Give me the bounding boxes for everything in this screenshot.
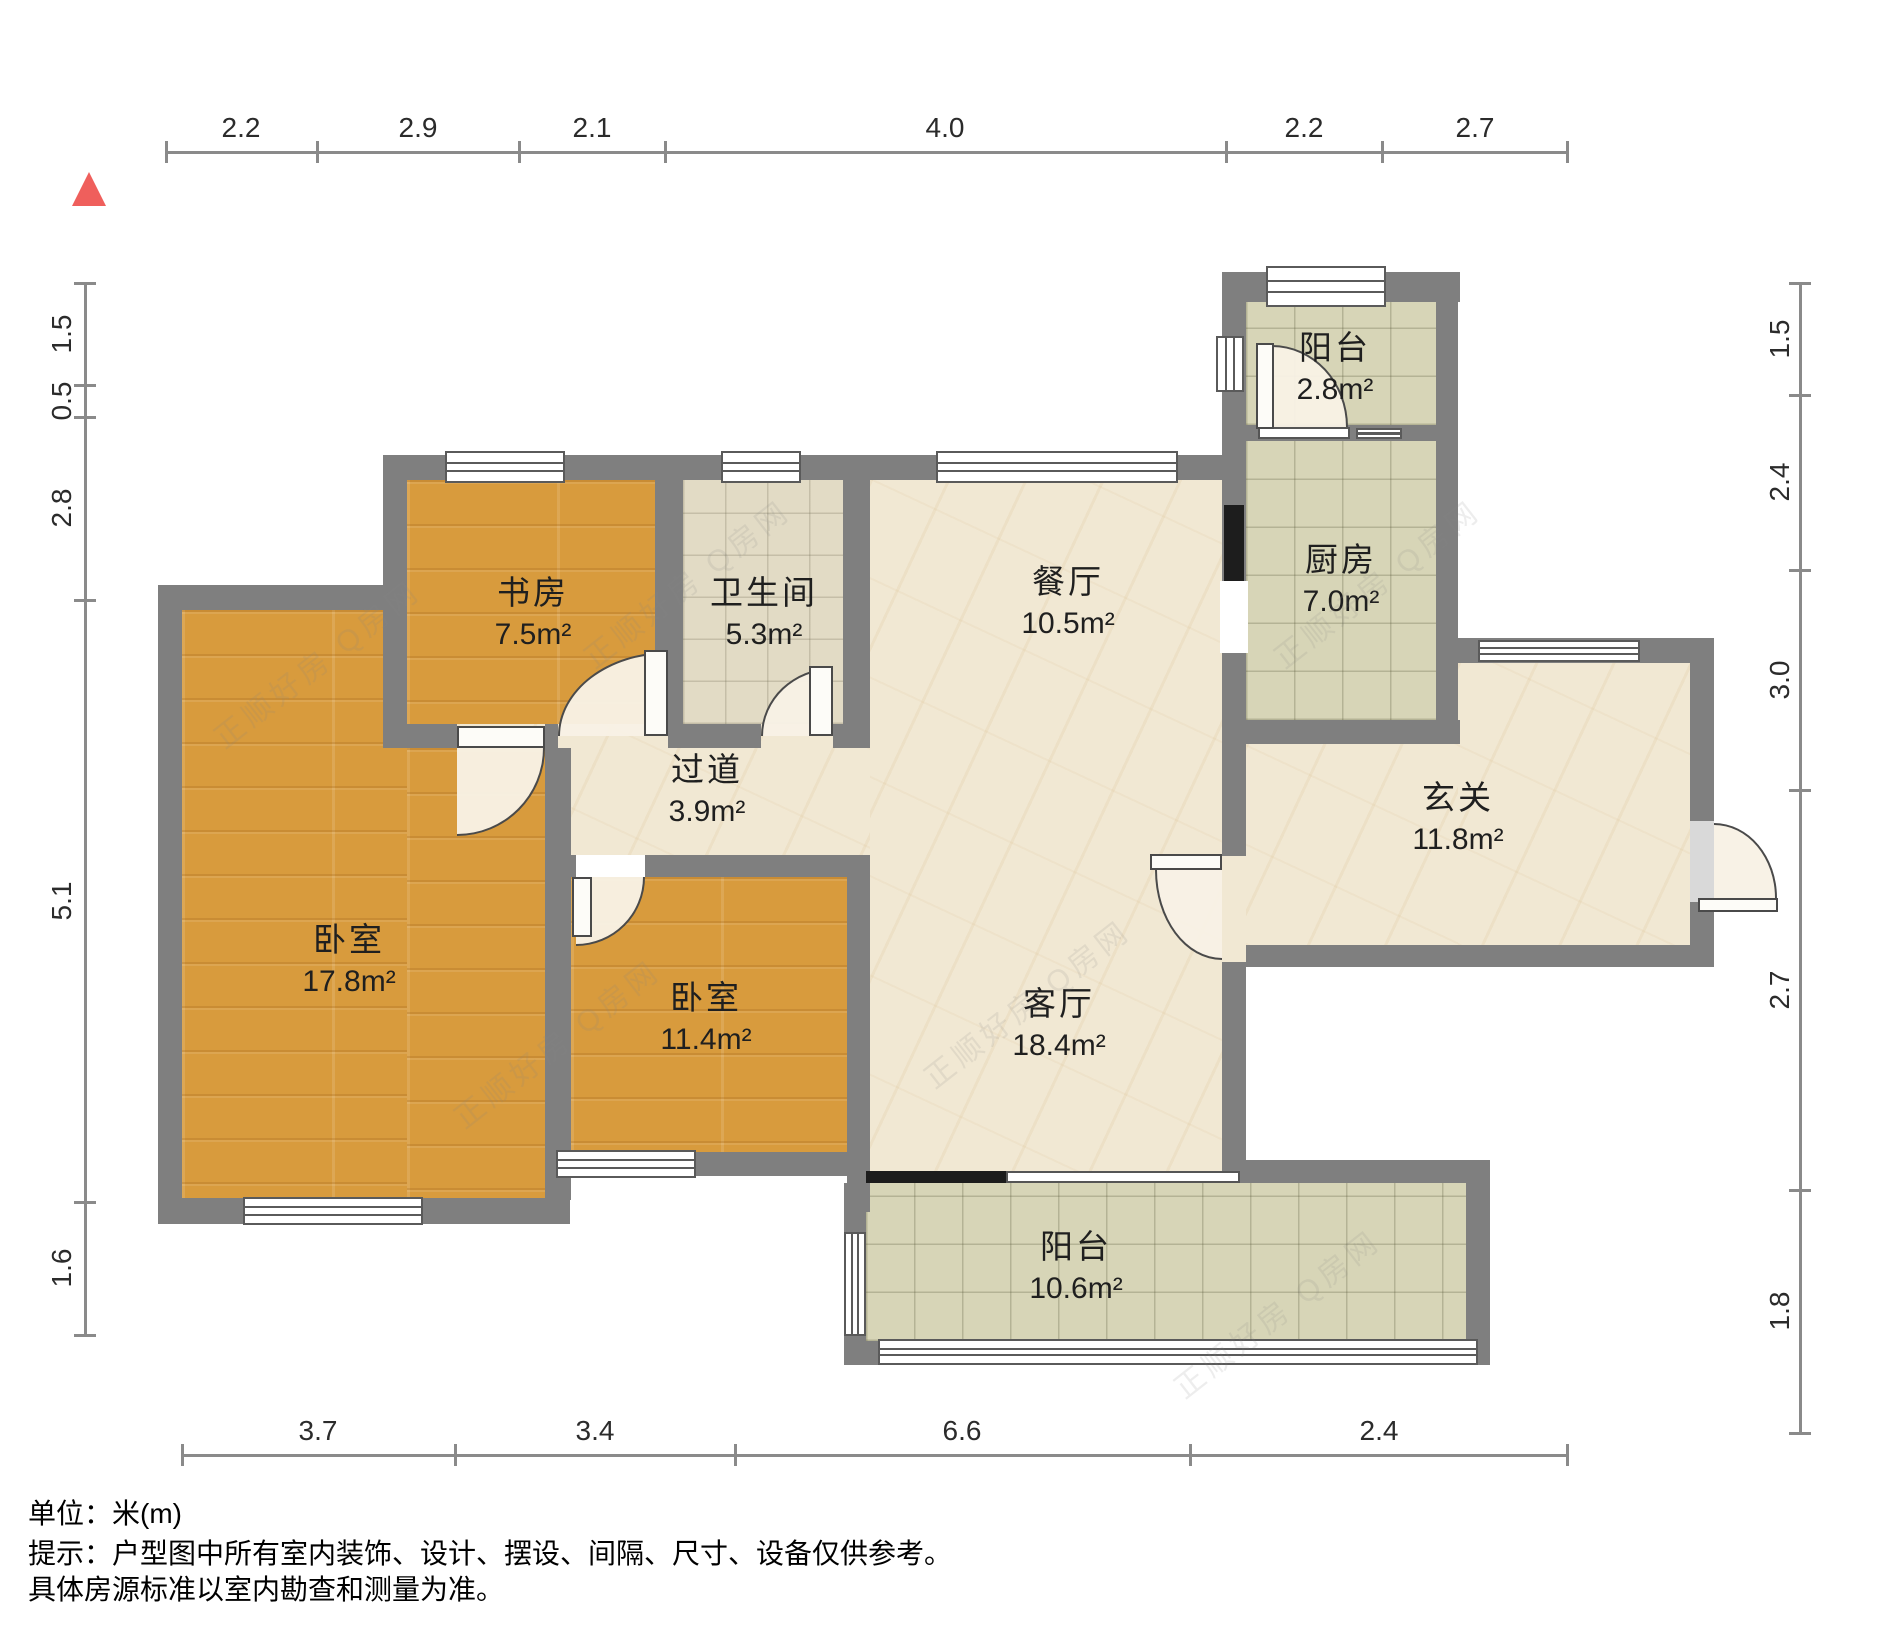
window-study	[445, 451, 565, 483]
wall-left-exterior	[158, 585, 182, 1224]
room-area-kitchen: 7.0m²	[1303, 582, 1380, 621]
dim-bottom-3: 6.6	[943, 1415, 982, 1447]
room-name-study: 书房	[495, 572, 572, 615]
dim-tick	[1789, 1189, 1811, 1192]
room-label-corridor: 过道 3.9m²	[669, 749, 746, 831]
room-area-corridor: 3.9m²	[669, 792, 746, 831]
window-foyer	[1478, 640, 1640, 662]
wall-bedroom-divider	[545, 748, 571, 1200]
wall-right-exterior-upper	[1690, 638, 1714, 823]
dim-top-3: 2.1	[573, 112, 612, 144]
wall-foyer-bottom	[1222, 945, 1714, 967]
wall-kitchen-bottom	[1222, 720, 1460, 744]
dim-tick	[1789, 789, 1811, 792]
dim-right-5: 1.8	[1764, 1292, 1796, 1331]
room-label-bedroom-small: 卧室 11.4m²	[660, 977, 751, 1059]
entry-door-recess	[1690, 821, 1714, 902]
dim-tick	[1566, 1444, 1569, 1466]
wall-bathroom-right	[843, 455, 870, 748]
room-name-foyer: 玄关	[1412, 777, 1503, 820]
window-bedroom-small	[556, 1150, 696, 1178]
wall-corridor-top-seg2	[545, 724, 558, 748]
door-leaf-balcony-north	[1256, 343, 1274, 429]
wall-corridor-top-seg3	[668, 724, 761, 748]
dim-tick	[734, 1444, 737, 1466]
room-area-balcony-north: 2.8m²	[1297, 370, 1374, 409]
room-label-bathroom: 卫生间 5.3m²	[710, 572, 818, 654]
dim-bottom-1: 3.7	[299, 1415, 338, 1447]
dim-tick	[518, 141, 521, 163]
kitchen-entry-opening	[1220, 581, 1248, 653]
room-label-dining: 餐厅 10.5m²	[1021, 561, 1114, 643]
wall-corridor-top-seg4	[833, 724, 870, 748]
flue-duct	[1224, 505, 1244, 581]
window-bathroom	[721, 451, 801, 483]
room-label-balcony-south: 阳台 10.6m²	[1029, 1226, 1122, 1308]
door-arc-entry	[1714, 823, 1777, 898]
wall-balcony-south-right	[1466, 1160, 1490, 1365]
room-name-kitchen: 厨房	[1303, 539, 1380, 582]
dim-tick	[181, 1444, 184, 1466]
balcony-south-threshold-dark	[866, 1171, 1006, 1183]
dim-top-2: 2.9	[399, 112, 438, 144]
dim-tick	[454, 1444, 457, 1466]
wall-step-northwest	[158, 585, 407, 610]
dim-line-top	[166, 151, 1568, 154]
wall-balcony-south-topright	[1222, 1160, 1490, 1183]
floor-balcony-south	[866, 1183, 1490, 1341]
window-balcony-south	[878, 1339, 1478, 1365]
dim-left-1: 1.5	[46, 315, 78, 354]
dim-left-3: 2.8	[46, 489, 78, 528]
window-dining	[936, 451, 1178, 483]
room-name-bathroom: 卫生间	[710, 572, 818, 615]
room-name-bedroom-large: 卧室	[302, 919, 395, 962]
dim-tick	[1566, 141, 1569, 163]
window-balcony-north-side	[1216, 336, 1244, 392]
dim-tick	[74, 1334, 96, 1337]
room-area-bathroom: 5.3m²	[710, 615, 818, 654]
room-label-living: 客厅 18.4m²	[1012, 983, 1105, 1065]
room-name-balcony-south: 阳台	[1029, 1226, 1122, 1269]
door-leaf-bedroom-small	[572, 877, 592, 937]
dim-tick	[1789, 394, 1811, 397]
room-area-balcony-south: 10.6m²	[1029, 1269, 1122, 1308]
dim-tick	[1789, 1432, 1811, 1435]
north-marker-icon	[72, 172, 106, 206]
dim-right-3: 3.0	[1764, 661, 1796, 700]
wall-corridor-bottom-seg1	[545, 855, 576, 877]
room-area-foyer: 11.8m²	[1412, 820, 1503, 859]
dim-bottom-2: 3.4	[576, 1415, 615, 1447]
floor-plan-stage: 阳台 2.8m² 厨房 7.0m² 餐厅 10.5m² 卫生间 5.3m² 书房…	[0, 0, 1900, 1642]
room-area-living: 18.4m²	[1012, 1026, 1105, 1065]
dim-left-4: 5.1	[46, 882, 78, 921]
dim-tick	[74, 599, 96, 602]
room-label-kitchen: 厨房 7.0m²	[1303, 539, 1380, 621]
dim-left-5: 1.6	[46, 1249, 78, 1288]
dim-top-6: 2.7	[1456, 112, 1495, 144]
room-label-foyer: 玄关 11.8m²	[1412, 777, 1503, 859]
unit-note: 单位：米(m)	[28, 1492, 182, 1532]
window-bedroom-large	[243, 1197, 423, 1225]
room-area-study: 7.5m²	[495, 615, 572, 654]
window-kitchen-pass	[1356, 428, 1402, 439]
dim-line-left	[84, 283, 87, 1335]
door-leaf-foyer	[1150, 854, 1222, 870]
dim-tick	[1789, 282, 1811, 285]
door-leaf-entry	[1698, 898, 1778, 912]
dim-top-4: 4.0	[926, 112, 965, 144]
dim-top-1: 2.2	[222, 112, 261, 144]
room-name-dining: 餐厅	[1021, 561, 1114, 604]
dim-left-2: 0.5	[46, 382, 78, 421]
room-name-balcony-north: 阳台	[1297, 327, 1374, 370]
dim-right-4: 2.7	[1764, 971, 1796, 1010]
room-name-bedroom-small: 卧室	[660, 977, 751, 1020]
dim-tick	[1789, 569, 1811, 572]
floor-bedroom-large-west	[182, 610, 407, 1200]
room-name-living: 客厅	[1012, 983, 1105, 1026]
wall-bedroom-small-right	[847, 877, 870, 1175]
disclaimer-line1: 提示：户型图中所有室内装饰、设计、摆设、间隔、尺寸、设备仅供参考。	[28, 1532, 952, 1572]
dim-tick	[165, 141, 168, 163]
room-area-dining: 10.5m²	[1021, 604, 1114, 643]
dim-tick	[1189, 1444, 1192, 1466]
wall-kitchen-right	[1436, 272, 1458, 744]
dim-top-5: 2.2	[1285, 112, 1324, 144]
dim-line-bottom	[182, 1454, 1568, 1457]
dim-line-right	[1799, 283, 1802, 1433]
door-leaf-bedroom-large	[457, 726, 545, 748]
room-label-study: 书房 7.5m²	[495, 572, 572, 654]
dim-tick	[1381, 141, 1384, 163]
dim-tick	[74, 282, 96, 285]
dim-right-2: 2.4	[1764, 463, 1796, 502]
room-label-bedroom-large: 卧室 17.8m²	[302, 919, 395, 1001]
door-leaf-study	[644, 650, 668, 736]
foyer-door-opening	[1222, 856, 1246, 962]
dim-tick	[74, 1201, 96, 1204]
balcony-south-threshold-light	[1006, 1171, 1240, 1183]
room-area-bedroom-small: 11.4m²	[660, 1020, 751, 1059]
wall-corridor-top-seg1	[383, 724, 457, 748]
dim-tick	[1225, 141, 1228, 163]
room-area-bedroom-large: 17.8m²	[302, 962, 395, 1001]
window-balcony-north	[1266, 266, 1386, 307]
wall-corridor-bottom-seg2	[645, 855, 870, 877]
dim-right-1: 1.5	[1764, 320, 1796, 359]
dim-tick	[664, 141, 667, 163]
window-balcony-south-side	[844, 1232, 866, 1336]
dim-bottom-4: 2.4	[1360, 1415, 1399, 1447]
dim-tick	[316, 141, 319, 163]
room-name-corridor: 过道	[669, 749, 746, 792]
room-label-balcony-north: 阳台 2.8m²	[1297, 327, 1374, 409]
disclaimer-line2: 具体房源标准以室内勘查和测量为准。	[28, 1568, 504, 1608]
door-leaf-bathroom	[809, 666, 833, 736]
